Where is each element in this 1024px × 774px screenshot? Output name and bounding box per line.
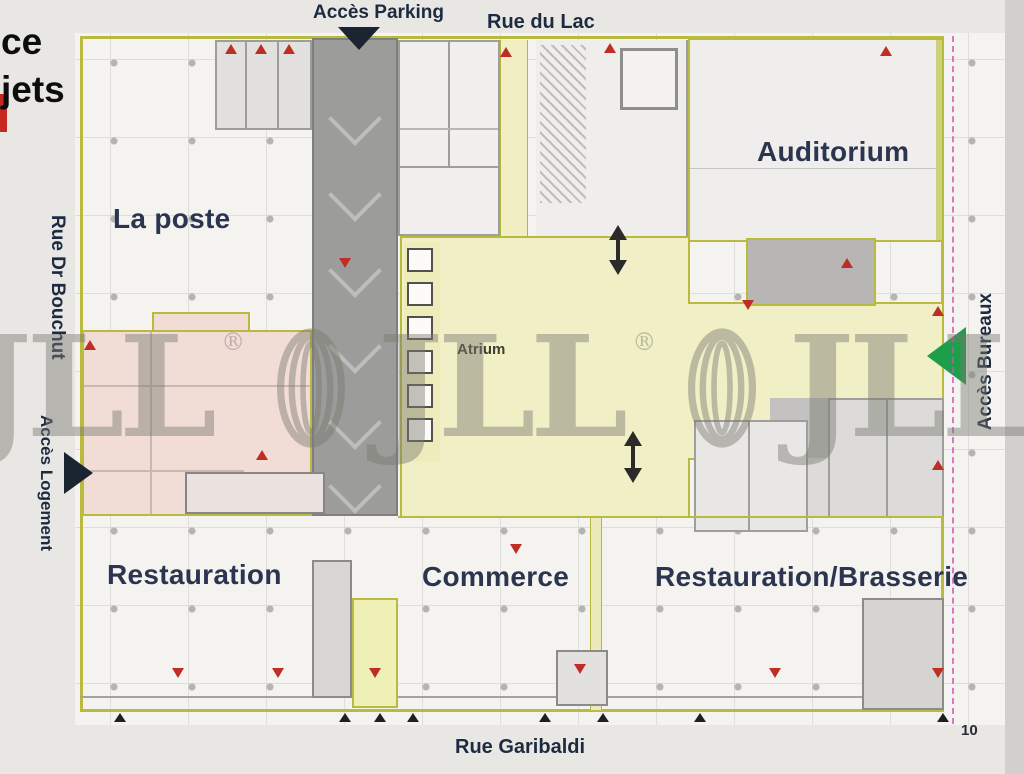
wall	[277, 40, 279, 130]
zone-label-commerce: Commerce	[422, 561, 569, 593]
lift	[407, 384, 433, 408]
wall	[886, 398, 888, 518]
wall	[448, 42, 450, 168]
atrium-hall	[400, 236, 690, 518]
ramp-chevron	[328, 320, 382, 374]
wall	[84, 385, 310, 387]
logement-access-arrow-icon	[64, 452, 93, 494]
exit-triangle-icon	[574, 664, 586, 674]
entry-triangle-icon	[937, 713, 949, 722]
exit-triangle-icon	[84, 340, 96, 350]
entry-triangle-icon	[597, 713, 609, 722]
lift	[407, 350, 433, 374]
wall	[245, 40, 247, 130]
zone-label-restauration: Restauration	[107, 559, 282, 591]
lift	[407, 248, 433, 272]
wall	[690, 168, 942, 169]
ramp-chevron	[328, 396, 382, 450]
exit-triangle-icon	[932, 668, 944, 678]
lift	[407, 316, 433, 340]
lift	[407, 282, 433, 306]
entry-triangle-icon	[407, 713, 419, 722]
wall	[398, 516, 602, 518]
label-acces-bureaux: Accès Bureaux	[975, 293, 997, 430]
exit-triangle-icon	[932, 306, 944, 316]
exit-triangle-icon	[369, 668, 381, 678]
floorplan-page: ce jets	[0, 0, 1024, 774]
ramp-chevron	[328, 92, 382, 146]
zone-label-la-poste: La poste	[113, 203, 231, 235]
stair-shaft	[312, 560, 352, 698]
label-rue-garibaldi: Rue Garibaldi	[455, 736, 585, 759]
corridor	[500, 40, 528, 246]
zone-label-atrium: Atrium	[457, 341, 505, 358]
exit-triangle-icon	[225, 44, 237, 54]
wall	[150, 332, 152, 514]
entry-triangle-icon	[374, 713, 386, 722]
south-wall	[80, 709, 944, 712]
exit-triangle-icon	[880, 46, 892, 56]
zone-label-brasserie: Restauration/Brasserie	[655, 561, 968, 593]
edge-strip	[936, 40, 942, 240]
zone-label-auditorium: Auditorium	[757, 136, 909, 168]
exit-triangle-icon	[742, 300, 754, 310]
ramp-chevron	[328, 244, 382, 298]
slide-text-fragment-2: jets	[1, 70, 65, 111]
slide-text-fragment-1: ce	[1, 22, 42, 63]
stair-core-east	[746, 238, 876, 306]
label-rue-du-lac: Rue du Lac	[487, 11, 595, 34]
exit-triangle-icon	[283, 44, 295, 54]
ramp-chevron	[328, 168, 382, 222]
label-acces-parking: Accès Parking	[313, 2, 444, 24]
exit-triangle-icon	[256, 450, 268, 460]
stairs	[540, 45, 586, 203]
page-number: 10	[961, 722, 978, 739]
exit-triangle-icon	[172, 668, 184, 678]
exit-triangle-icon	[339, 258, 351, 268]
entry-triangle-icon	[694, 713, 706, 722]
label-rue-dr-bouchut: Rue Dr Bouchut	[46, 215, 68, 360]
wall	[828, 398, 830, 518]
exit-triangle-icon	[932, 460, 944, 470]
sidewalk-line	[80, 696, 944, 698]
stair-se	[862, 598, 944, 710]
boundary-dashed-line	[952, 36, 954, 724]
entrance-double-arrow-icon	[616, 240, 620, 260]
exit-triangle-icon	[272, 668, 284, 678]
label-acces-logement: Accès Logement	[36, 415, 56, 551]
wall	[602, 516, 944, 518]
parking-access-arrow-icon	[338, 27, 380, 50]
exit-triangle-icon	[841, 258, 853, 268]
exit-triangle-icon	[500, 47, 512, 57]
entry-triangle-icon	[114, 713, 126, 722]
right-gutter	[1005, 0, 1024, 774]
exit-triangle-icon	[510, 544, 522, 554]
wall	[400, 166, 498, 168]
bureaux-access-arrow-icon	[927, 327, 966, 385]
lift	[407, 418, 433, 442]
parking-ramp	[312, 38, 398, 516]
entrance-double-arrow-icon	[631, 446, 635, 468]
exit-triangle-icon	[255, 44, 267, 54]
entry-triangle-icon	[539, 713, 551, 722]
exit-triangle-icon	[769, 668, 781, 678]
exit-triangle-icon	[604, 43, 616, 53]
stair-small	[556, 650, 608, 706]
entry-triangle-icon	[339, 713, 351, 722]
storage-room	[185, 472, 325, 514]
yellow-shaft	[352, 598, 398, 708]
wall	[400, 128, 498, 130]
shaft	[620, 48, 678, 110]
ramp-chevron	[328, 460, 382, 514]
